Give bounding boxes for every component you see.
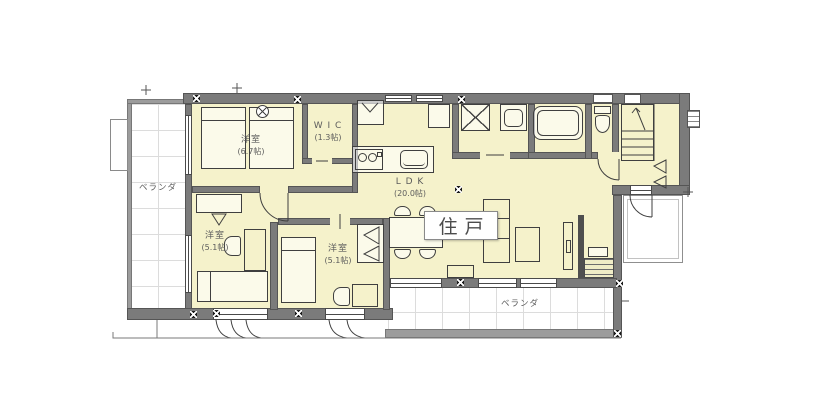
window-kitchen-north-1 [385,95,412,102]
wall-joint-marker [295,310,302,317]
washing-machine-icon [461,104,490,131]
unit-label: 住戸 [438,212,490,239]
desk [244,229,266,271]
room-size: (6.7帖) [238,147,265,156]
bath-east-wall [585,104,592,159]
room-name: L D K [382,177,438,188]
washroom-west-wall [452,104,459,159]
entrance-porch-inner-line [627,199,679,259]
coffee-table [515,227,540,262]
stove [355,149,383,170]
tv-partition-wall [578,215,584,278]
hall-wall-a [192,186,260,193]
room-label-wic: W I C (1.3帖) [300,121,356,144]
veranda-west [131,104,185,308]
stove-burner-icon [358,153,367,162]
casement-window-arcs [216,320,365,338]
window-bench [447,265,474,278]
bedroom-divider-wall [270,222,278,310]
toilet-east-wall [612,104,619,159]
wall-joint-marker [458,96,465,103]
room-name: 洋室 [187,231,243,242]
room-label-bedroom-west: 洋室 (5.1帖) [187,231,243,254]
bathtub [533,106,583,140]
east-meter-box [687,110,700,128]
tv [566,240,571,253]
washbasin-bowl [504,109,523,127]
wall-joint-marker [616,280,623,287]
wall-joint-marker [213,310,220,317]
stove-burner-icon [368,153,377,162]
bed-pillow-line [202,120,245,121]
kitchen-cabinet [428,104,450,128]
dining-chair [394,206,411,216]
room-label-bedroom-south: 洋室 (5.1帖) [310,244,366,267]
closet [196,194,242,213]
window-ldk-2 [478,278,517,288]
window-kitchen-north-2 [416,95,443,102]
hall-wall-b [288,186,358,193]
toilet-tank [594,106,611,114]
room-name: 洋室 [310,244,366,255]
wall-joint-marker [193,95,200,102]
north-pipe-space-1 [593,94,613,103]
room-name: 洋室 [222,135,280,146]
window-ldk-3 [520,278,557,288]
window-south-bedroom-west [213,308,268,320]
washroom-door-opening [480,152,510,159]
bed [197,271,268,302]
window-ldk-1 [390,278,442,288]
washbasin [500,104,527,131]
north-pipe-space-2 [624,94,641,104]
ceiling-light-icon [256,105,269,118]
desk-chair [333,287,350,306]
wall-joint-marker [457,279,464,286]
staircase [621,104,654,161]
wall-joint-marker [614,330,621,337]
stove-grill [377,152,382,157]
veranda-west-top-wall [127,99,187,104]
wall-joint-marker [190,311,197,318]
veranda-south-rail-wall [385,329,622,338]
wall-joint-marker [455,186,462,193]
hall-door-opening [598,152,619,159]
entrance-step [584,258,614,278]
wall-joint-marker [294,96,301,103]
east-wall-lower [613,195,622,337]
veranda-south-label: ベランダ [480,299,560,310]
kitchen-sink [400,150,428,169]
entrance-door-opening [630,185,652,195]
room-size: (20.0帖) [394,189,426,198]
refrigerator [357,100,384,125]
wic-door-opening [312,158,332,164]
floor-plan: 洋室 (6.7帖) W I C (1.3帖) L D K (20.0帖) 洋室 … [0,0,815,419]
bathtub-inner [537,110,579,136]
veranda-west-label: ベランダ [132,183,184,194]
room-size: (5.1帖) [202,243,229,252]
room-size: (1.3帖) [315,133,342,142]
room-name: W I C [300,121,356,132]
entrance-bench [588,247,608,257]
sink-inner-line [403,153,425,166]
east-wall-upper [679,93,690,195]
desk [352,284,378,307]
tv-board [563,222,573,270]
room-size: (5.1帖) [325,256,352,265]
unit-label-box: 住戸 [424,211,498,240]
room-label-bedroom-main: 洋室 (6.7帖) [222,135,280,158]
room-label-ldk: L D K (20.0帖) [382,177,438,200]
window-south-bedroom-south [325,308,365,320]
window-west-1 [185,115,192,175]
entrance-porch [623,195,683,263]
bed-pillow-line [210,272,211,301]
bedroom-south-door-opening [330,218,350,225]
bed-pillow-line [250,120,293,121]
west-exterior-box [110,119,128,171]
